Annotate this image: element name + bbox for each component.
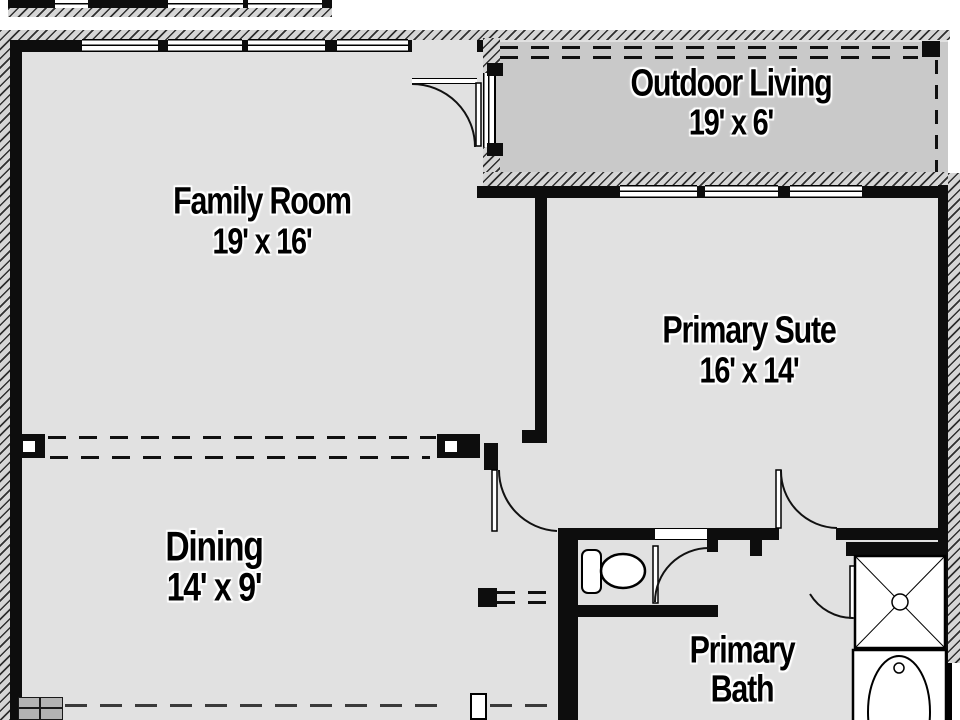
family-suite-wall — [535, 186, 547, 432]
wc-bottom-wall — [565, 605, 718, 617]
cased-opening-dashed — [50, 456, 430, 459]
ceiling-break-dashed — [65, 704, 440, 707]
patio-boundary-dashed — [500, 46, 918, 49]
room-label-dining: Dining — [165, 526, 262, 569]
window — [620, 185, 697, 198]
ceiling-break-dashed — [490, 704, 558, 707]
room-dims-family-room: 19' x 16' — [213, 224, 312, 261]
room-label-primary-bath: Primary Bath — [678, 631, 806, 709]
room-dims-dining: 14' x 9' — [167, 568, 262, 609]
exterior-gap — [948, 40, 960, 173]
shower-top-wall — [846, 542, 948, 556]
room-dims-outdoor-living: 19' x 6' — [689, 105, 773, 142]
column-marker-line — [39, 697, 41, 720]
window — [337, 39, 408, 52]
window — [168, 39, 242, 52]
post — [487, 143, 503, 156]
outdoor-bottom-hatch-wall — [483, 172, 948, 186]
window — [705, 185, 778, 198]
room-label-primary-suite: Primary Sute — [662, 312, 835, 351]
cased-opening-stub-inner — [23, 441, 35, 452]
bath-left-wall — [558, 528, 578, 720]
cased-opening-dashed — [48, 436, 436, 439]
right-exterior-hatch-wall — [948, 173, 960, 663]
opening-marker — [470, 693, 487, 720]
hall-wall-stub — [478, 588, 497, 607]
left-exterior-hatch-wall — [0, 30, 10, 720]
window — [936, 663, 952, 720]
hall-wall — [484, 443, 498, 470]
window — [168, 0, 243, 8]
door-opening — [655, 528, 707, 540]
room-dims-primary-suite: 16' x 14' — [700, 353, 799, 390]
door-opening — [779, 528, 836, 540]
door-opening — [412, 40, 477, 52]
wall-stub — [750, 540, 762, 556]
window — [248, 0, 322, 8]
post — [487, 63, 503, 76]
suite-bottom-wall — [836, 528, 948, 540]
room-label-family-room: Family Room — [173, 183, 351, 222]
suite-bottom-wall — [578, 528, 655, 540]
door-header — [412, 78, 477, 84]
right-wall — [938, 185, 948, 663]
window — [248, 39, 325, 52]
patio-boundary-dashed — [935, 60, 938, 172]
upper-structure-hatch-wall — [8, 8, 332, 17]
suite-bottom-wall — [707, 528, 779, 540]
left-wall — [10, 40, 22, 720]
closet-dashed — [497, 591, 557, 594]
wall-stub — [707, 540, 718, 552]
window — [82, 39, 158, 52]
floor-plan: Family Room 19' x 16' Outdoor Living 19'… — [0, 0, 960, 720]
closet-dashed — [497, 601, 557, 604]
cased-opening-stub-inner — [445, 441, 457, 452]
room-label-outdoor-living: Outdoor Living — [630, 65, 831, 104]
window — [790, 185, 862, 198]
wall-stub — [522, 430, 547, 443]
window — [55, 0, 88, 8]
post — [922, 41, 940, 57]
cased-opening-stub — [437, 434, 480, 458]
patio-boundary-dashed — [500, 56, 918, 59]
window — [483, 73, 496, 147]
